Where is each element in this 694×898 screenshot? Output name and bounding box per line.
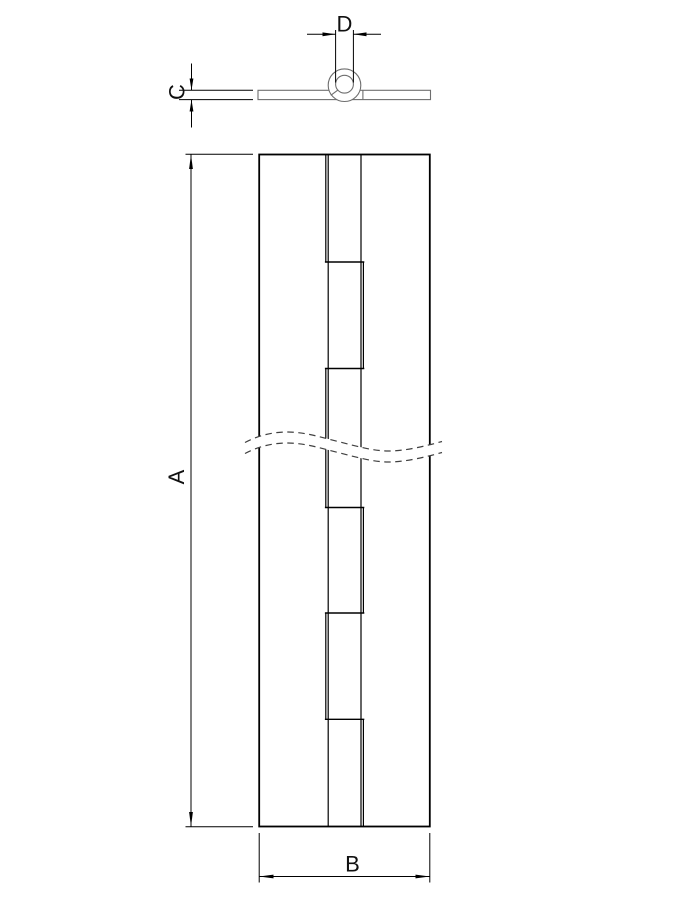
arrowhead [189,155,193,170]
dimension-label-a: A [164,469,189,484]
dimension-label-c: C [165,84,190,100]
arrowhead [416,875,430,879]
arrowhead [259,875,273,879]
arrowhead [190,79,194,91]
dimension-c: C [165,64,254,128]
arrowhead [323,32,336,36]
hinge-technical-drawing: D C [0,0,694,898]
arrowhead [190,100,194,112]
dimension-b: B [259,833,430,883]
arrowhead [353,32,366,36]
drawing-svg: D C [0,0,694,898]
side-profile-view [258,69,431,102]
arrowhead [189,812,193,827]
dimension-label-b: B [345,852,360,877]
dimension-label-d: D [337,12,353,37]
dimension-a: A [164,154,253,826]
hinge-face-outline [259,155,430,827]
front-view [245,155,442,827]
